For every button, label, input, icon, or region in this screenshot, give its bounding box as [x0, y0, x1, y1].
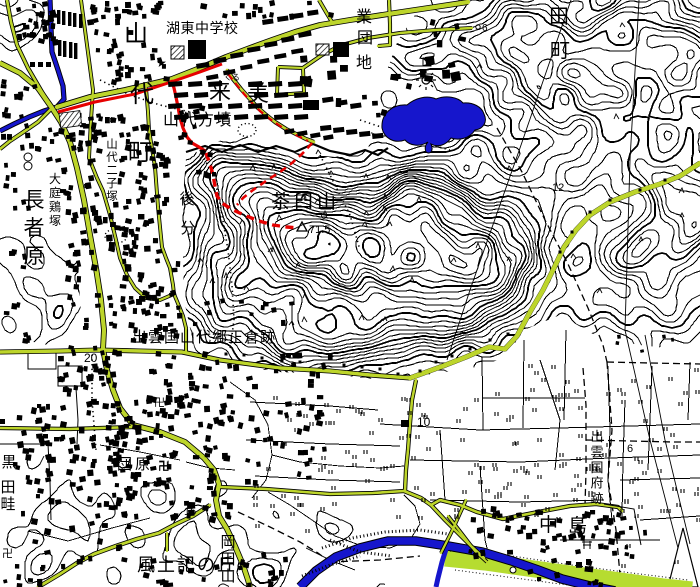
svg-text:湖東中学校: 湖東中学校 [166, 20, 239, 36]
svg-text:町: 町 [128, 139, 152, 166]
svg-text:島: 島 [568, 515, 587, 537]
svg-text:美: 美 [247, 81, 269, 106]
svg-text:6: 6 [627, 443, 633, 455]
svg-text:卍: 卍 [154, 396, 165, 409]
svg-text:者: 者 [24, 217, 45, 240]
svg-text:田: 田 [220, 551, 235, 568]
svg-text:田: 田 [549, 6, 569, 28]
svg-text:6: 6 [482, 23, 488, 34]
svg-text:15: 15 [184, 506, 196, 518]
svg-text:団: 団 [357, 30, 373, 47]
svg-text:跡: 跡 [590, 491, 603, 506]
svg-text:中: 中 [539, 514, 558, 536]
svg-text:二: 二 [106, 165, 118, 177]
svg-text:長: 長 [24, 189, 45, 212]
svg-text:代: 代 [130, 81, 154, 108]
svg-text:団原: 団原 [117, 456, 153, 473]
svg-text:出雲国山代郷正倉跡: 出雲国山代郷正倉跡 [132, 329, 276, 346]
svg-text:鶏: 鶏 [49, 200, 61, 214]
svg-text:10: 10 [417, 415, 431, 429]
svg-text:黒: 黒 [1, 454, 16, 471]
svg-text:来: 来 [209, 79, 231, 104]
svg-text:庭: 庭 [49, 185, 61, 200]
svg-text:府: 府 [590, 476, 603, 491]
svg-text:茶: 茶 [271, 191, 290, 213]
svg-text:山: 山 [106, 138, 118, 151]
svg-text:代: 代 [106, 151, 118, 164]
svg-text:分: 分 [180, 220, 195, 237]
svg-text:12: 12 [552, 182, 564, 194]
svg-text:雲: 雲 [590, 445, 603, 460]
svg-text:原: 原 [24, 245, 45, 268]
svg-text:地: 地 [356, 54, 372, 72]
svg-text:岡: 岡 [220, 534, 235, 551]
svg-text:山: 山 [220, 568, 235, 585]
svg-text:山: 山 [124, 21, 148, 48]
svg-text:★: ★ [156, 56, 167, 70]
svg-text:町: 町 [550, 40, 570, 62]
svg-text:子: 子 [106, 177, 118, 190]
svg-text:塚: 塚 [49, 214, 61, 228]
svg-text:畦: 畦 [0, 496, 15, 513]
svg-text:臼: 臼 [294, 190, 313, 212]
svg-text:卍: 卍 [158, 459, 170, 473]
svg-text:国: 国 [590, 460, 603, 475]
svg-text:田: 田 [0, 479, 15, 496]
svg-text:大: 大 [49, 172, 61, 186]
svg-text:後: 後 [179, 191, 194, 208]
svg-text:山: 山 [317, 191, 336, 213]
svg-text:71.5: 71.5 [309, 224, 330, 236]
svg-text:出: 出 [590, 429, 603, 444]
svg-text:20: 20 [84, 351, 98, 365]
svg-text:塚: 塚 [106, 189, 118, 203]
svg-text:卍: 卍 [2, 547, 13, 560]
svg-text:山代方墳: 山代方墳 [163, 111, 233, 129]
svg-text:業: 業 [356, 8, 372, 26]
